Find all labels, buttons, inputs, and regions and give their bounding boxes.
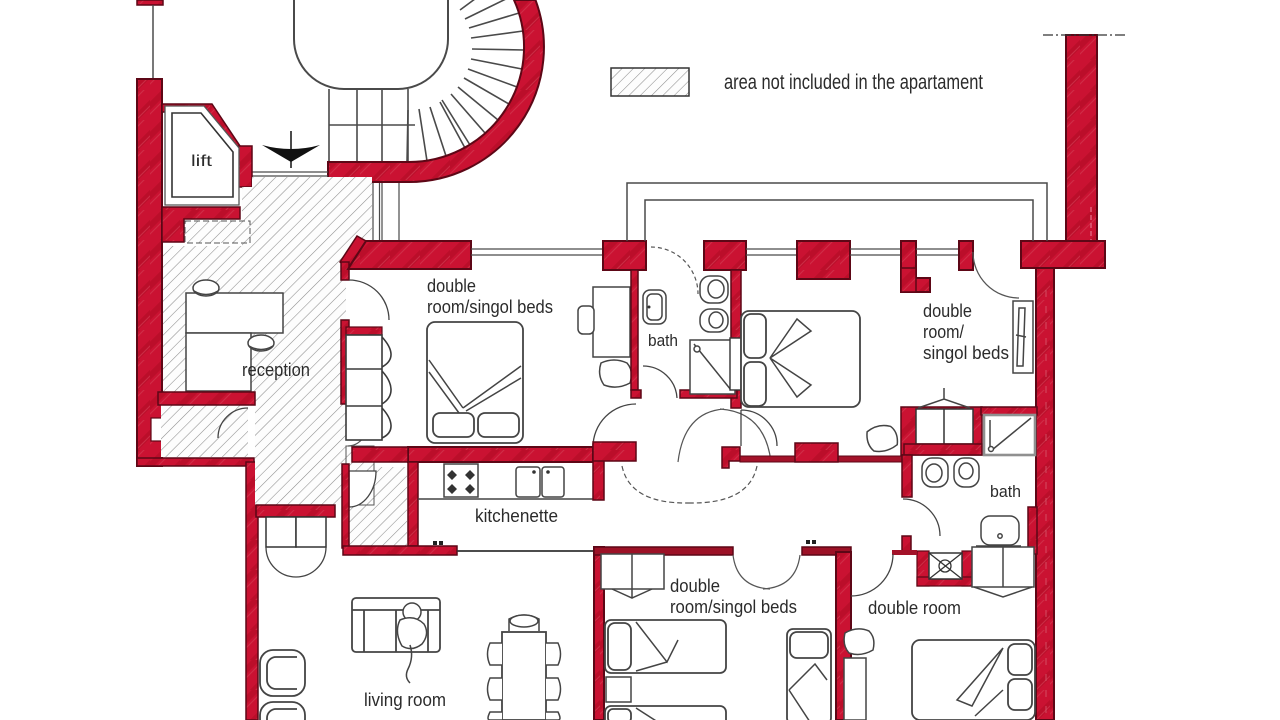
svg-text:reception: reception [242,360,310,380]
svg-text:room/: room/ [923,322,964,342]
svg-text:kitchenette: kitchenette [475,506,558,526]
svg-text:living room: living room [364,690,446,710]
svg-text:area not included in the apart: area not included in the apartament [724,71,983,94]
svg-text:double room: double room [868,598,961,618]
svg-text:lift: lift [191,153,213,170]
svg-text:double: double [923,301,972,321]
svg-text:double: double [427,276,476,296]
svg-text:bath: bath [648,331,678,350]
svg-text:room/singol beds: room/singol beds [427,297,553,317]
svg-text:bath: bath [990,482,1021,501]
svg-text:room/singol beds: room/singol beds [670,597,797,617]
svg-text:singol beds: singol beds [923,343,1009,363]
svg-text:double: double [670,576,720,596]
